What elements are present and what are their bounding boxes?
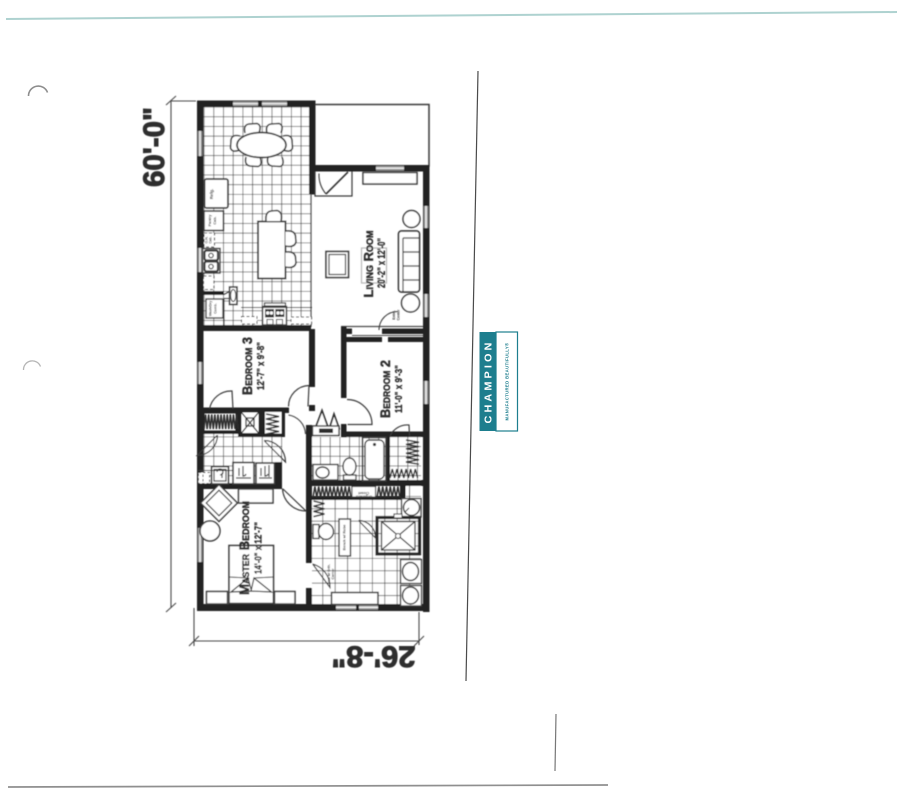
svg-text:MANUFACTURED BEAUTIFULLY®: MANUFACTURED BEAUTIFULLY® bbox=[504, 342, 510, 420]
svg-text:Cab.: Cab. bbox=[209, 236, 213, 243]
svg-text:Bench w/ Robe: Bench w/ Robe bbox=[343, 525, 347, 551]
svg-text:14'-0" x 12'-7": 14'-0" x 12'-7" bbox=[253, 522, 265, 574]
svg-text:Living Room: Living Room bbox=[361, 231, 376, 298]
svg-text:Bedroom 2: Bedroom 2 bbox=[378, 360, 393, 418]
svg-text:Comb.: Comb. bbox=[214, 303, 218, 314]
svg-text:12'-7" x 9'-8": 12'-7" x 9'-8" bbox=[255, 342, 267, 390]
svg-text:Organizer: Organizer bbox=[355, 495, 372, 499]
svg-text:Closet: Closet bbox=[358, 491, 370, 495]
svg-text:Corner: Corner bbox=[331, 568, 335, 580]
svg-text:Bedroom 3: Bedroom 3 bbox=[240, 337, 255, 395]
svg-text:Refg.: Refg. bbox=[209, 189, 214, 199]
svg-text:Wash/Dry: Wash/Dry bbox=[209, 301, 213, 317]
svg-text:11'-0" x 9'-3": 11'-0" x 9'-3" bbox=[393, 365, 405, 413]
svg-text:Center: Center bbox=[397, 309, 401, 320]
svg-text:20'-2" x 12'-0": 20'-2" x 12'-0" bbox=[376, 238, 388, 288]
svg-text:Pantry: Pantry bbox=[208, 214, 212, 227]
svg-text:CHAMPION: CHAMPION bbox=[483, 340, 495, 424]
svg-text:Master Bedroom: Master Bedroom bbox=[237, 501, 252, 595]
svg-text:Cab.: Cab. bbox=[213, 216, 217, 224]
svg-text:26'-8": 26'-8" bbox=[332, 640, 416, 673]
svg-text:60'-0": 60'-0" bbox=[138, 107, 171, 187]
svg-text:Enter.: Enter. bbox=[392, 310, 396, 319]
